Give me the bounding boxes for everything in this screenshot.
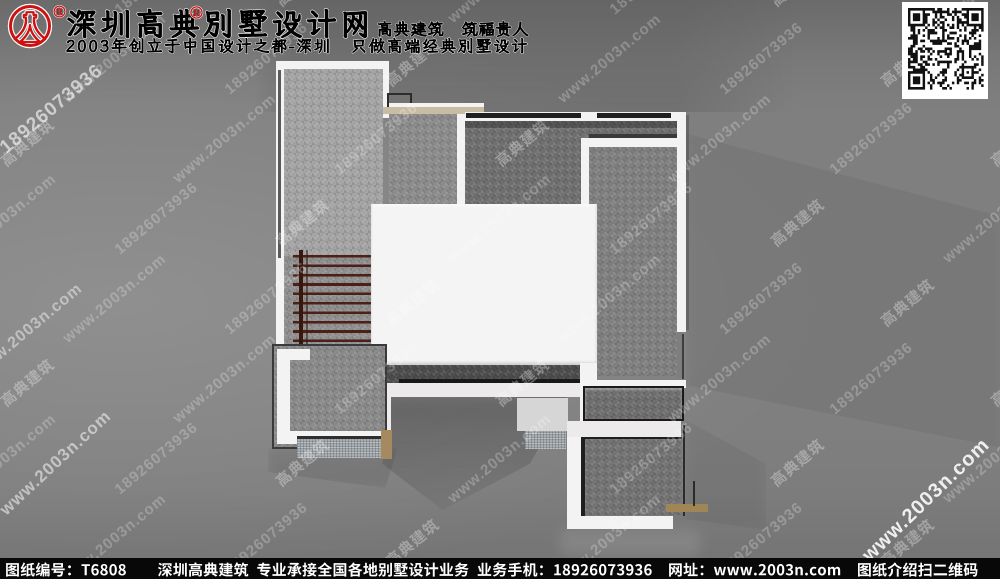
svg-text:R: R (193, 9, 200, 19)
